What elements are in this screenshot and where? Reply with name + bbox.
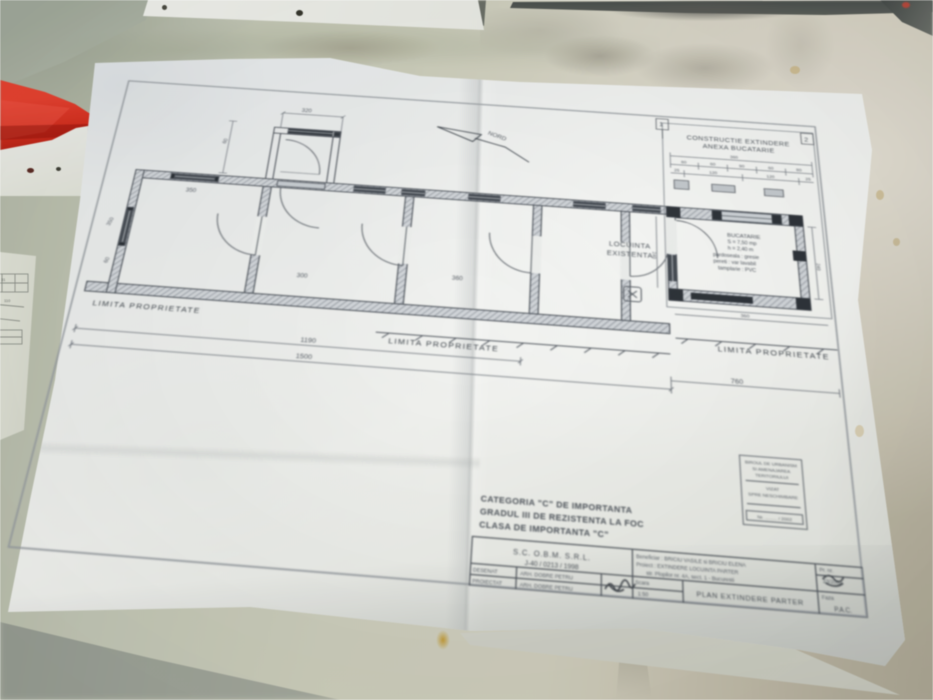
svg-text:90: 90	[739, 163, 745, 168]
svg-text:120: 120	[709, 170, 718, 175]
svg-text:SPRE NESCHIMBARE: SPRE NESCHIMBARE	[748, 492, 799, 501]
svg-text:80: 80	[796, 167, 803, 172]
svg-text:760: 760	[731, 378, 744, 386]
svg-text:h = 2,40 m: h = 2,40 m	[728, 245, 754, 252]
svg-text:DESENAT: DESENAT	[473, 567, 499, 575]
svg-text:P.A.C.: P.A.C.	[834, 606, 852, 615]
svg-text:1500: 1500	[295, 353, 312, 361]
svg-text:60: 60	[768, 165, 775, 170]
svg-text:360: 360	[730, 154, 739, 159]
svg-text:60: 60	[102, 256, 112, 264]
svg-text:PLAN EXTINDERE PARTER: PLAN EXTINDERE PARTER	[696, 591, 804, 608]
svg-text:350: 350	[185, 187, 197, 194]
svg-text:110: 110	[4, 298, 11, 303]
svg-text:1: 1	[659, 121, 664, 128]
svg-text:tamplarie : PVC: tamplarie : PVC	[718, 265, 757, 273]
svg-text:60: 60	[710, 161, 716, 166]
svg-text:EXISTENTA: EXISTENTA	[607, 250, 654, 261]
svg-text:350: 350	[105, 216, 116, 226]
svg-text:80: 80	[681, 159, 687, 164]
svg-text:360: 360	[740, 313, 750, 319]
svg-text:320: 320	[301, 108, 312, 114]
svg-text:Faza: Faza	[822, 595, 836, 602]
svg-text:2: 2	[804, 137, 809, 144]
svg-text:300: 300	[296, 273, 308, 280]
svg-text:31: 31	[1, 277, 6, 282]
svg-text:360: 360	[452, 275, 463, 282]
svg-text:25: 25	[674, 167, 680, 172]
svg-text:240: 240	[815, 263, 822, 271]
svg-text:Pr. nr.: Pr. nr.	[819, 567, 834, 574]
svg-text:120: 120	[766, 174, 775, 179]
svg-text:NORD: NORD	[487, 131, 508, 143]
svg-text:Scara: Scara	[635, 580, 650, 587]
svg-text:1:50: 1:50	[638, 591, 649, 598]
svg-text:1190: 1190	[300, 337, 317, 345]
svg-text:VIZAT: VIZAT	[766, 486, 781, 492]
svg-text:LIMITA PROPRIETATE: LIMITA PROPRIETATE	[91, 300, 201, 316]
svg-text:25: 25	[805, 176, 812, 181]
